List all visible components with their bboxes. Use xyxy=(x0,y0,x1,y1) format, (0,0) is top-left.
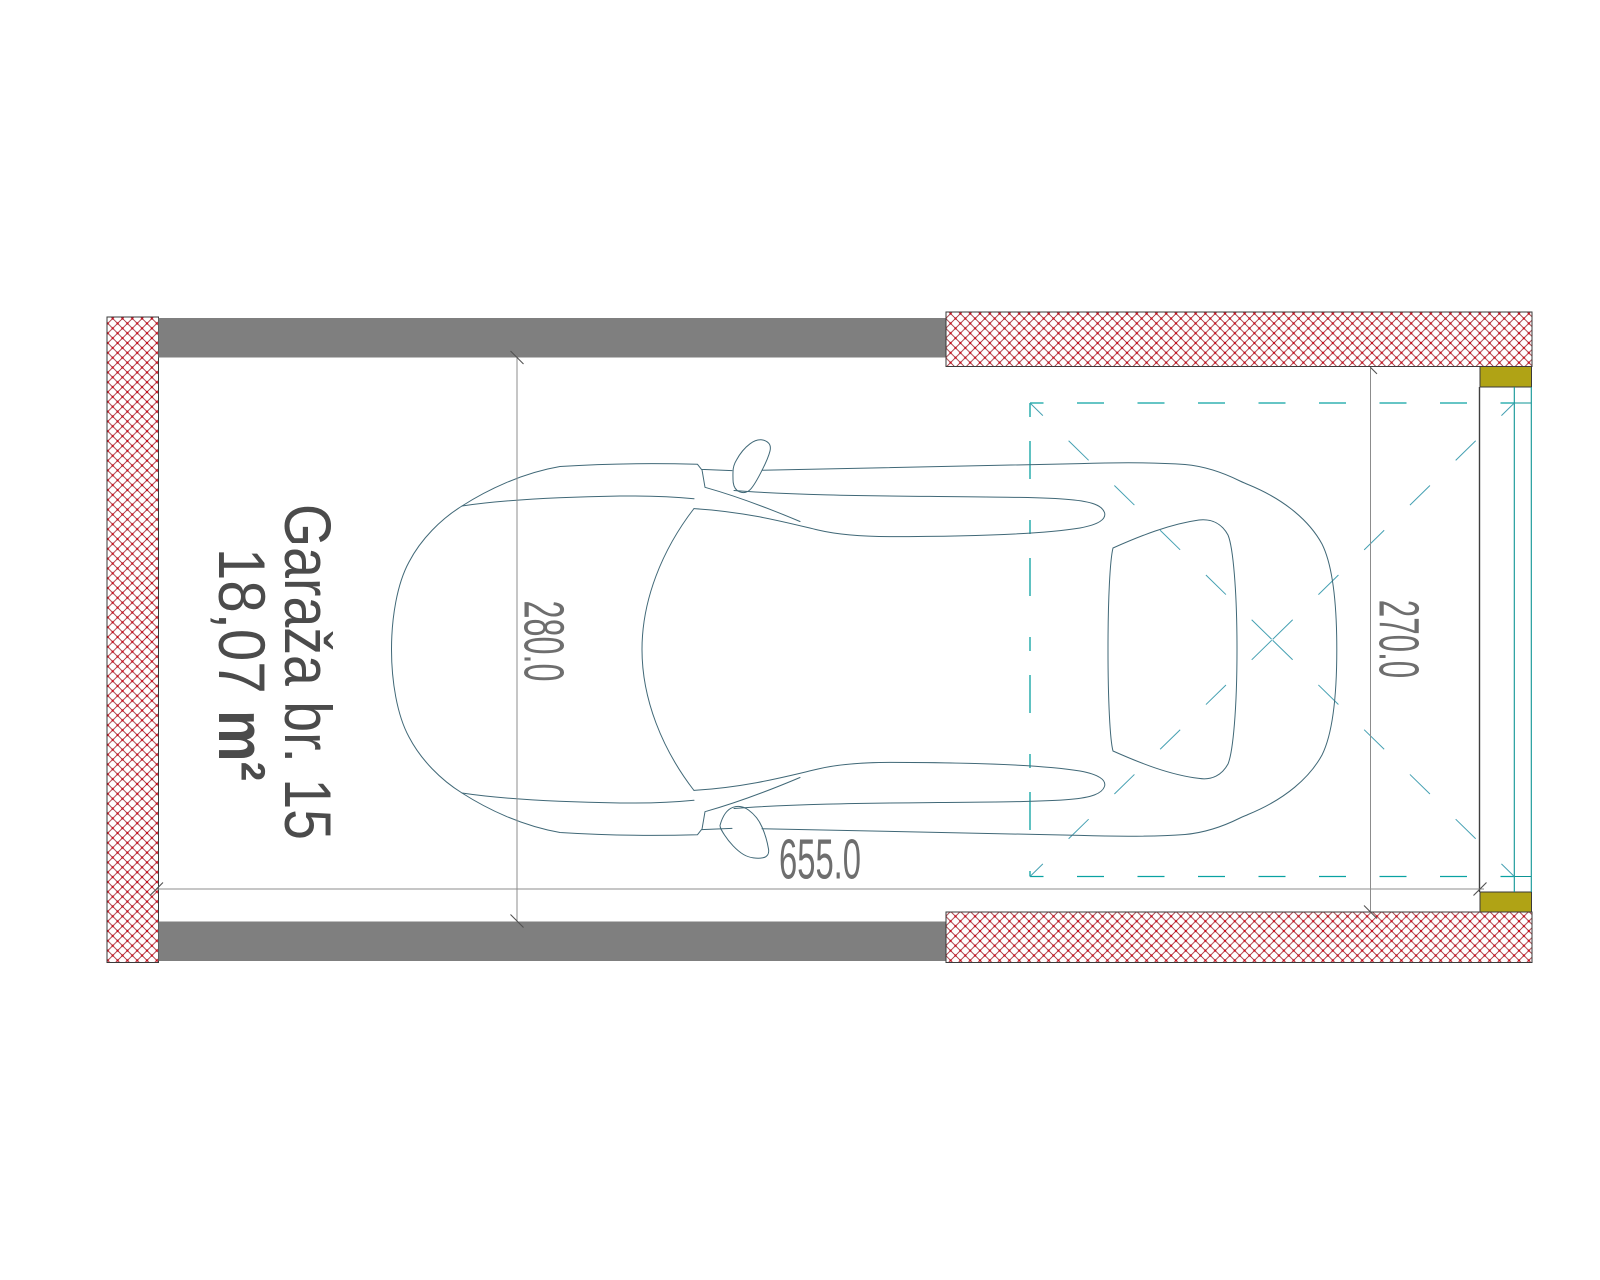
svg-text:280.0: 280.0 xyxy=(512,601,576,682)
svg-text:Garaža br. 15: Garaža br. 15 xyxy=(271,504,345,840)
svg-text:655.0: 655.0 xyxy=(779,828,861,892)
svg-text:270.0: 270.0 xyxy=(1367,600,1431,679)
svg-text:18,07 m²: 18,07 m² xyxy=(205,548,279,781)
